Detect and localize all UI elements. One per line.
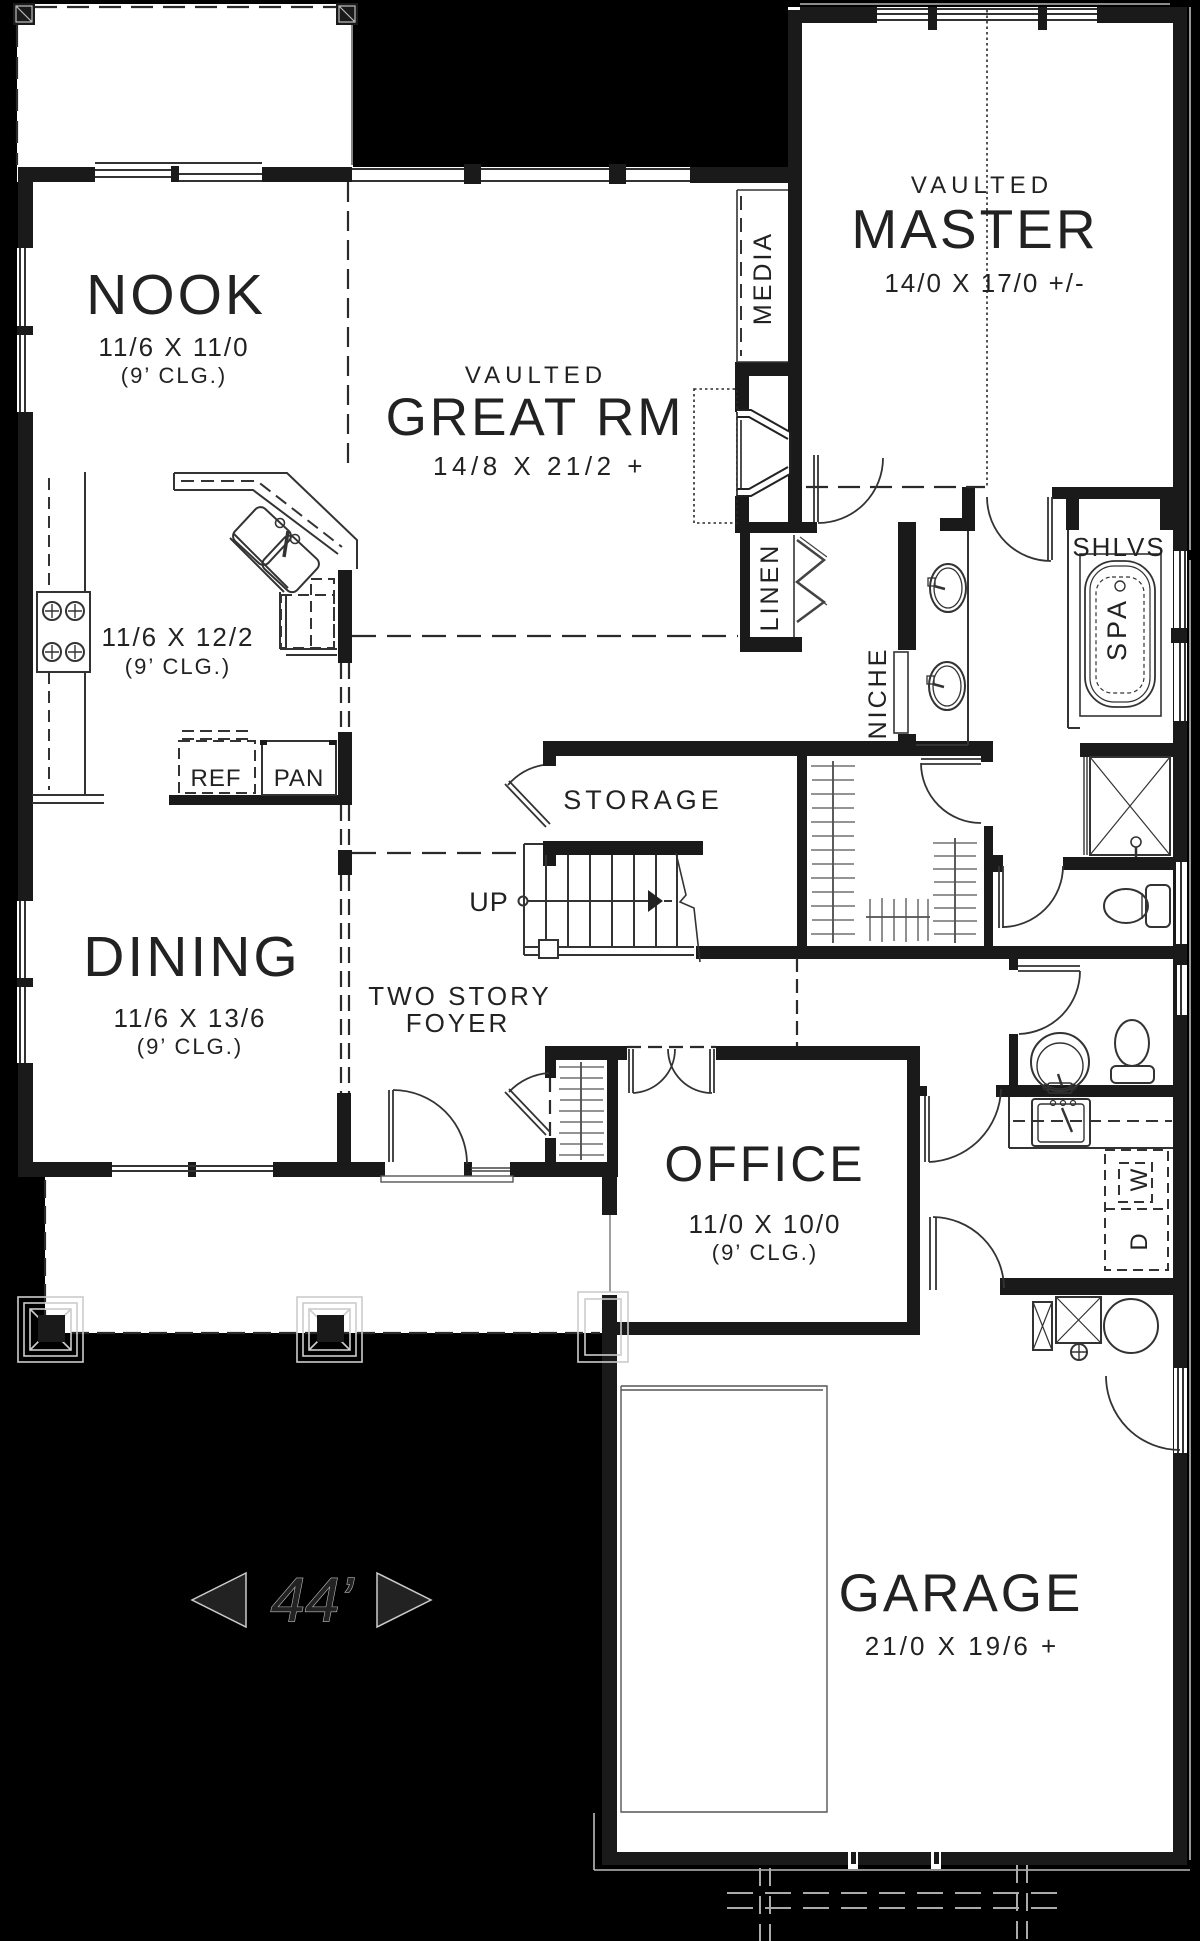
svg-text:FOYER: FOYER [406,1008,511,1038]
svg-text:11/6 X 12/2: 11/6 X 12/2 [101,622,254,652]
svg-text:NOOK: NOOK [86,263,266,327]
svg-text:(9’ CLG.): (9’ CLG.) [125,654,231,679]
svg-text:GREAT RM: GREAT RM [386,388,685,447]
svg-text:11/6 X 13/6: 11/6 X 13/6 [113,1003,266,1033]
svg-text:PAN: PAN [274,765,325,792]
svg-text:11/6 X 11/0: 11/6 X 11/0 [98,332,249,362]
svg-text:D: D [1126,1233,1153,1250]
svg-text:MEDIA: MEDIA [749,231,777,325]
svg-text:44’: 44’ [271,1566,355,1635]
svg-text:REF: REF [191,765,242,792]
svg-text:(9’ CLG.): (9’ CLG.) [137,1034,243,1059]
svg-text:11/0 X 10/0: 11/0 X 10/0 [688,1209,841,1239]
svg-text:DINING: DINING [83,925,301,989]
svg-text:(9’ CLG.): (9’ CLG.) [121,363,227,388]
svg-text:NICHE: NICHE [864,647,892,740]
svg-text:SPA: SPA [1102,597,1132,661]
svg-text:STORAGE: STORAGE [563,785,723,815]
svg-text:UP: UP [469,887,509,917]
svg-text:VAULTED: VAULTED [911,172,1053,199]
svg-text:14/0 X 17/0 +/-: 14/0 X 17/0 +/- [884,268,1085,298]
svg-text:TWO STORY: TWO STORY [368,981,552,1011]
svg-text:21/0 X 19/6 +: 21/0 X 19/6 + [865,1631,1059,1661]
svg-text:(9’ CLG.): (9’ CLG.) [712,1240,818,1265]
svg-text:GARAGE: GARAGE [839,1564,1084,1623]
svg-text:14/8 X 21/2 +: 14/8 X 21/2 + [433,451,647,481]
svg-text:OFFICE: OFFICE [664,1136,865,1192]
svg-text:MASTER: MASTER [851,198,1098,260]
svg-text:VAULTED: VAULTED [465,362,607,389]
svg-text:W: W [1126,1168,1153,1191]
svg-text:SHLVS: SHLVS [1072,532,1165,562]
svg-text:LINEN: LINEN [756,543,784,632]
